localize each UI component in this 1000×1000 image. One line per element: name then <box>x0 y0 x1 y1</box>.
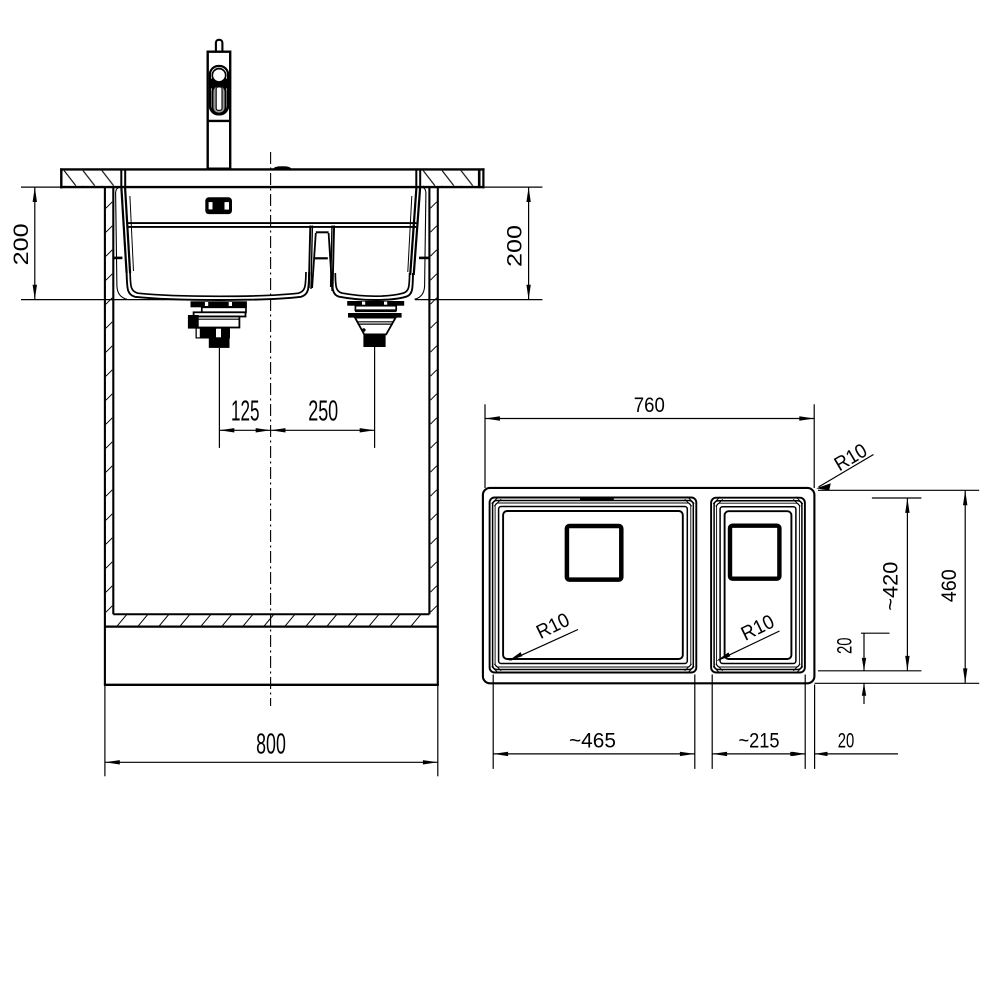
svg-text:250: 250 <box>308 396 338 428</box>
svg-text:460: 460 <box>937 569 961 602</box>
svg-text:20: 20 <box>838 729 855 753</box>
svg-text:~465: ~465 <box>569 729 616 753</box>
svg-text:~215: ~215 <box>739 729 780 753</box>
svg-text:200: 200 <box>503 225 527 267</box>
svg-text:20: 20 <box>833 638 857 655</box>
svg-text:760: 760 <box>634 393 665 417</box>
svg-text:~420: ~420 <box>879 562 903 611</box>
svg-text:200: 200 <box>9 223 33 265</box>
svg-text:800: 800 <box>256 729 286 761</box>
svg-text:125: 125 <box>231 396 260 428</box>
